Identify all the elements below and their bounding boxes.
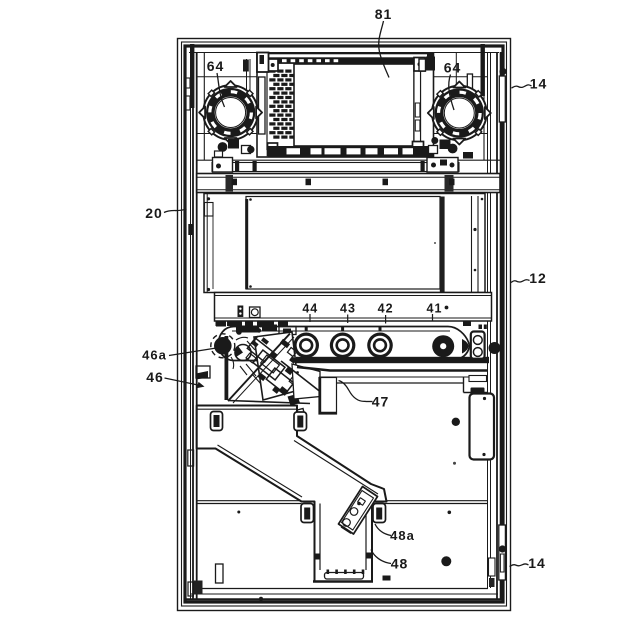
- svg-text:20: 20: [145, 205, 163, 221]
- svg-text:46: 46: [146, 369, 164, 385]
- svg-text:64: 64: [207, 58, 225, 74]
- svg-text:48: 48: [391, 556, 409, 572]
- svg-text:41: 41: [427, 302, 443, 316]
- svg-text:47: 47: [372, 394, 390, 410]
- svg-text:12: 12: [529, 270, 547, 286]
- svg-text:64: 64: [444, 60, 462, 76]
- svg-text:14: 14: [530, 76, 548, 92]
- svg-text:44: 44: [302, 302, 318, 316]
- svg-text:43: 43: [340, 302, 356, 316]
- svg-text:48a: 48a: [390, 528, 415, 543]
- svg-text:42: 42: [378, 302, 394, 316]
- svg-text:46a: 46a: [142, 348, 167, 363]
- svg-text:14: 14: [528, 555, 546, 571]
- svg-text:81: 81: [375, 6, 393, 22]
